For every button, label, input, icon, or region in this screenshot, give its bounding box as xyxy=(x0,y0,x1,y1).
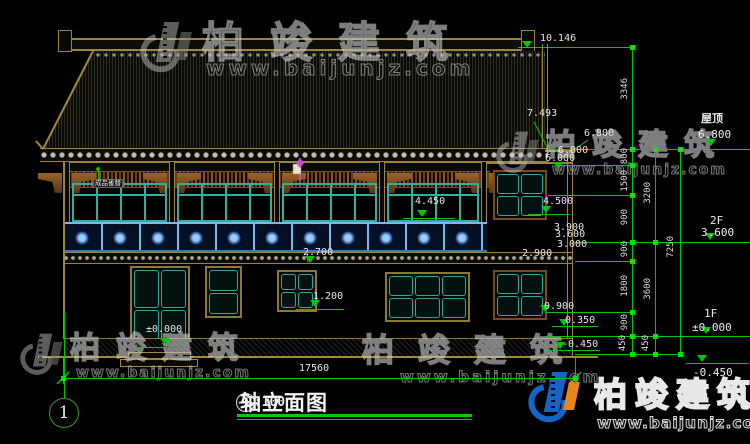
dimension-line xyxy=(545,312,632,313)
dimension-tick xyxy=(630,147,635,152)
dimension-line xyxy=(556,165,632,166)
bracket-note-label: 成品雀替 xyxy=(93,179,123,188)
elevation-label-pm0000: ±0.000 xyxy=(146,325,182,335)
dimension-line xyxy=(64,312,65,398)
dimension-value: 7250 xyxy=(667,236,676,258)
elevation-label-2900: 2.900 xyxy=(522,249,552,259)
dimension-line xyxy=(63,378,575,379)
dimension-value: 1500 xyxy=(621,170,630,192)
dimension-value: 450 xyxy=(619,335,628,351)
dimension-tick xyxy=(630,352,635,357)
dimension-value: 1800 xyxy=(621,275,630,297)
dimension-line xyxy=(140,347,190,348)
watermark-logo-icon xyxy=(140,20,198,80)
level-value-2f: 3.600 xyxy=(701,227,734,238)
elevation-label-6800-leader: 6.800 xyxy=(584,129,614,139)
cad-elevation-drawing: 柏竣建筑 www.baijunjz.com 柏竣建筑 www.baijunjz.… xyxy=(0,0,750,444)
dimension-tick xyxy=(630,193,635,198)
dimension-value: 3346 xyxy=(621,78,630,100)
dimension-line xyxy=(680,149,681,355)
dimension-value: 900 xyxy=(621,209,630,225)
dimension-line xyxy=(237,419,472,420)
elevation-marker-triangle xyxy=(522,41,532,48)
elevation-label-7493: 7.493 xyxy=(527,109,557,119)
elevation-label-4450: 4.450 xyxy=(415,197,445,207)
dimension-tick xyxy=(573,376,578,381)
elevation-label-3000: 3.000 xyxy=(557,240,587,250)
dimension-tick xyxy=(653,334,658,339)
dimension-tick xyxy=(678,352,683,357)
dimension-line xyxy=(575,261,632,262)
dimension-value: 900 xyxy=(621,314,630,330)
dimension-value: 3200 xyxy=(644,182,653,204)
level-label-roof: 屋顶 xyxy=(701,114,723,125)
dimension-line xyxy=(518,47,632,48)
elevation-label-minus0450: -0.450 xyxy=(562,340,598,350)
level-value-ground: -0.450 xyxy=(693,367,733,378)
level-value-roof: 6.800 xyxy=(698,129,731,140)
watermark-logo-icon xyxy=(496,130,537,174)
elevation-marker-triangle xyxy=(541,206,551,213)
dimension-line xyxy=(575,354,680,355)
dimension-line xyxy=(632,47,633,355)
elevation-label-6000: 6.000 xyxy=(545,154,575,164)
dimension-tick xyxy=(678,147,683,152)
dimension-line xyxy=(296,309,344,310)
dimension-line xyxy=(403,218,455,219)
dimension-tick xyxy=(653,240,658,245)
elevation-label-4500: 4.500 xyxy=(543,197,573,207)
dimension-tick xyxy=(630,163,635,168)
grid-axis-bubble-1: 1 xyxy=(49,398,79,428)
dimension-value: 900 xyxy=(621,241,630,257)
dimension-line xyxy=(552,326,598,327)
brand-logo-url: www.baijunjz.com xyxy=(597,416,750,432)
dimension-value: 450 xyxy=(642,335,651,351)
dimension-value: 3600 xyxy=(644,278,653,300)
dimension-line xyxy=(655,149,656,355)
elevation-label-0350: 0.350 xyxy=(565,316,595,326)
dimension-line xyxy=(237,414,472,417)
elevation-marker-triangle xyxy=(417,210,427,217)
brand-logo-name: 柏竣建筑 xyxy=(594,378,750,411)
dimension-line xyxy=(575,242,750,243)
dimension-line xyxy=(686,363,748,364)
brand-logo-icon xyxy=(528,370,590,436)
dimension-tick xyxy=(653,352,658,357)
dimension-tick xyxy=(630,45,635,50)
dimension-tick xyxy=(630,310,635,315)
watermark-logo-icon xyxy=(20,332,61,376)
level-label-1f: 1F xyxy=(704,308,717,319)
elevation-label-2700: 2.700 xyxy=(303,248,333,258)
level-value-1f: ±0.000 xyxy=(692,322,732,333)
elevation-marker-triangle xyxy=(697,355,707,362)
elevation-label-1200: 1.200 xyxy=(313,292,343,302)
level-label-2f: 2F xyxy=(710,215,723,226)
drawing-title: 1 - 9 轴立面图 1:100 xyxy=(236,388,496,416)
dimension-tick xyxy=(630,334,635,339)
dimension-tick xyxy=(630,240,635,245)
title-scale: 1:100 xyxy=(246,395,285,410)
dimension-value: 800 xyxy=(621,148,630,164)
dimension-tick xyxy=(630,259,635,264)
elevation-label-10146: 10.146 xyxy=(540,34,576,44)
watermark-url: www.baijunjz.com xyxy=(206,58,474,78)
dimension-tick xyxy=(653,147,658,152)
dimension-line xyxy=(548,350,600,351)
total-width-dimension: 17560 xyxy=(299,364,329,374)
dimension-tick xyxy=(61,376,66,381)
elevation-label-0900: 0.900 xyxy=(544,302,574,312)
elevation-marker-triangle xyxy=(160,338,170,345)
dimension-line xyxy=(528,214,570,215)
